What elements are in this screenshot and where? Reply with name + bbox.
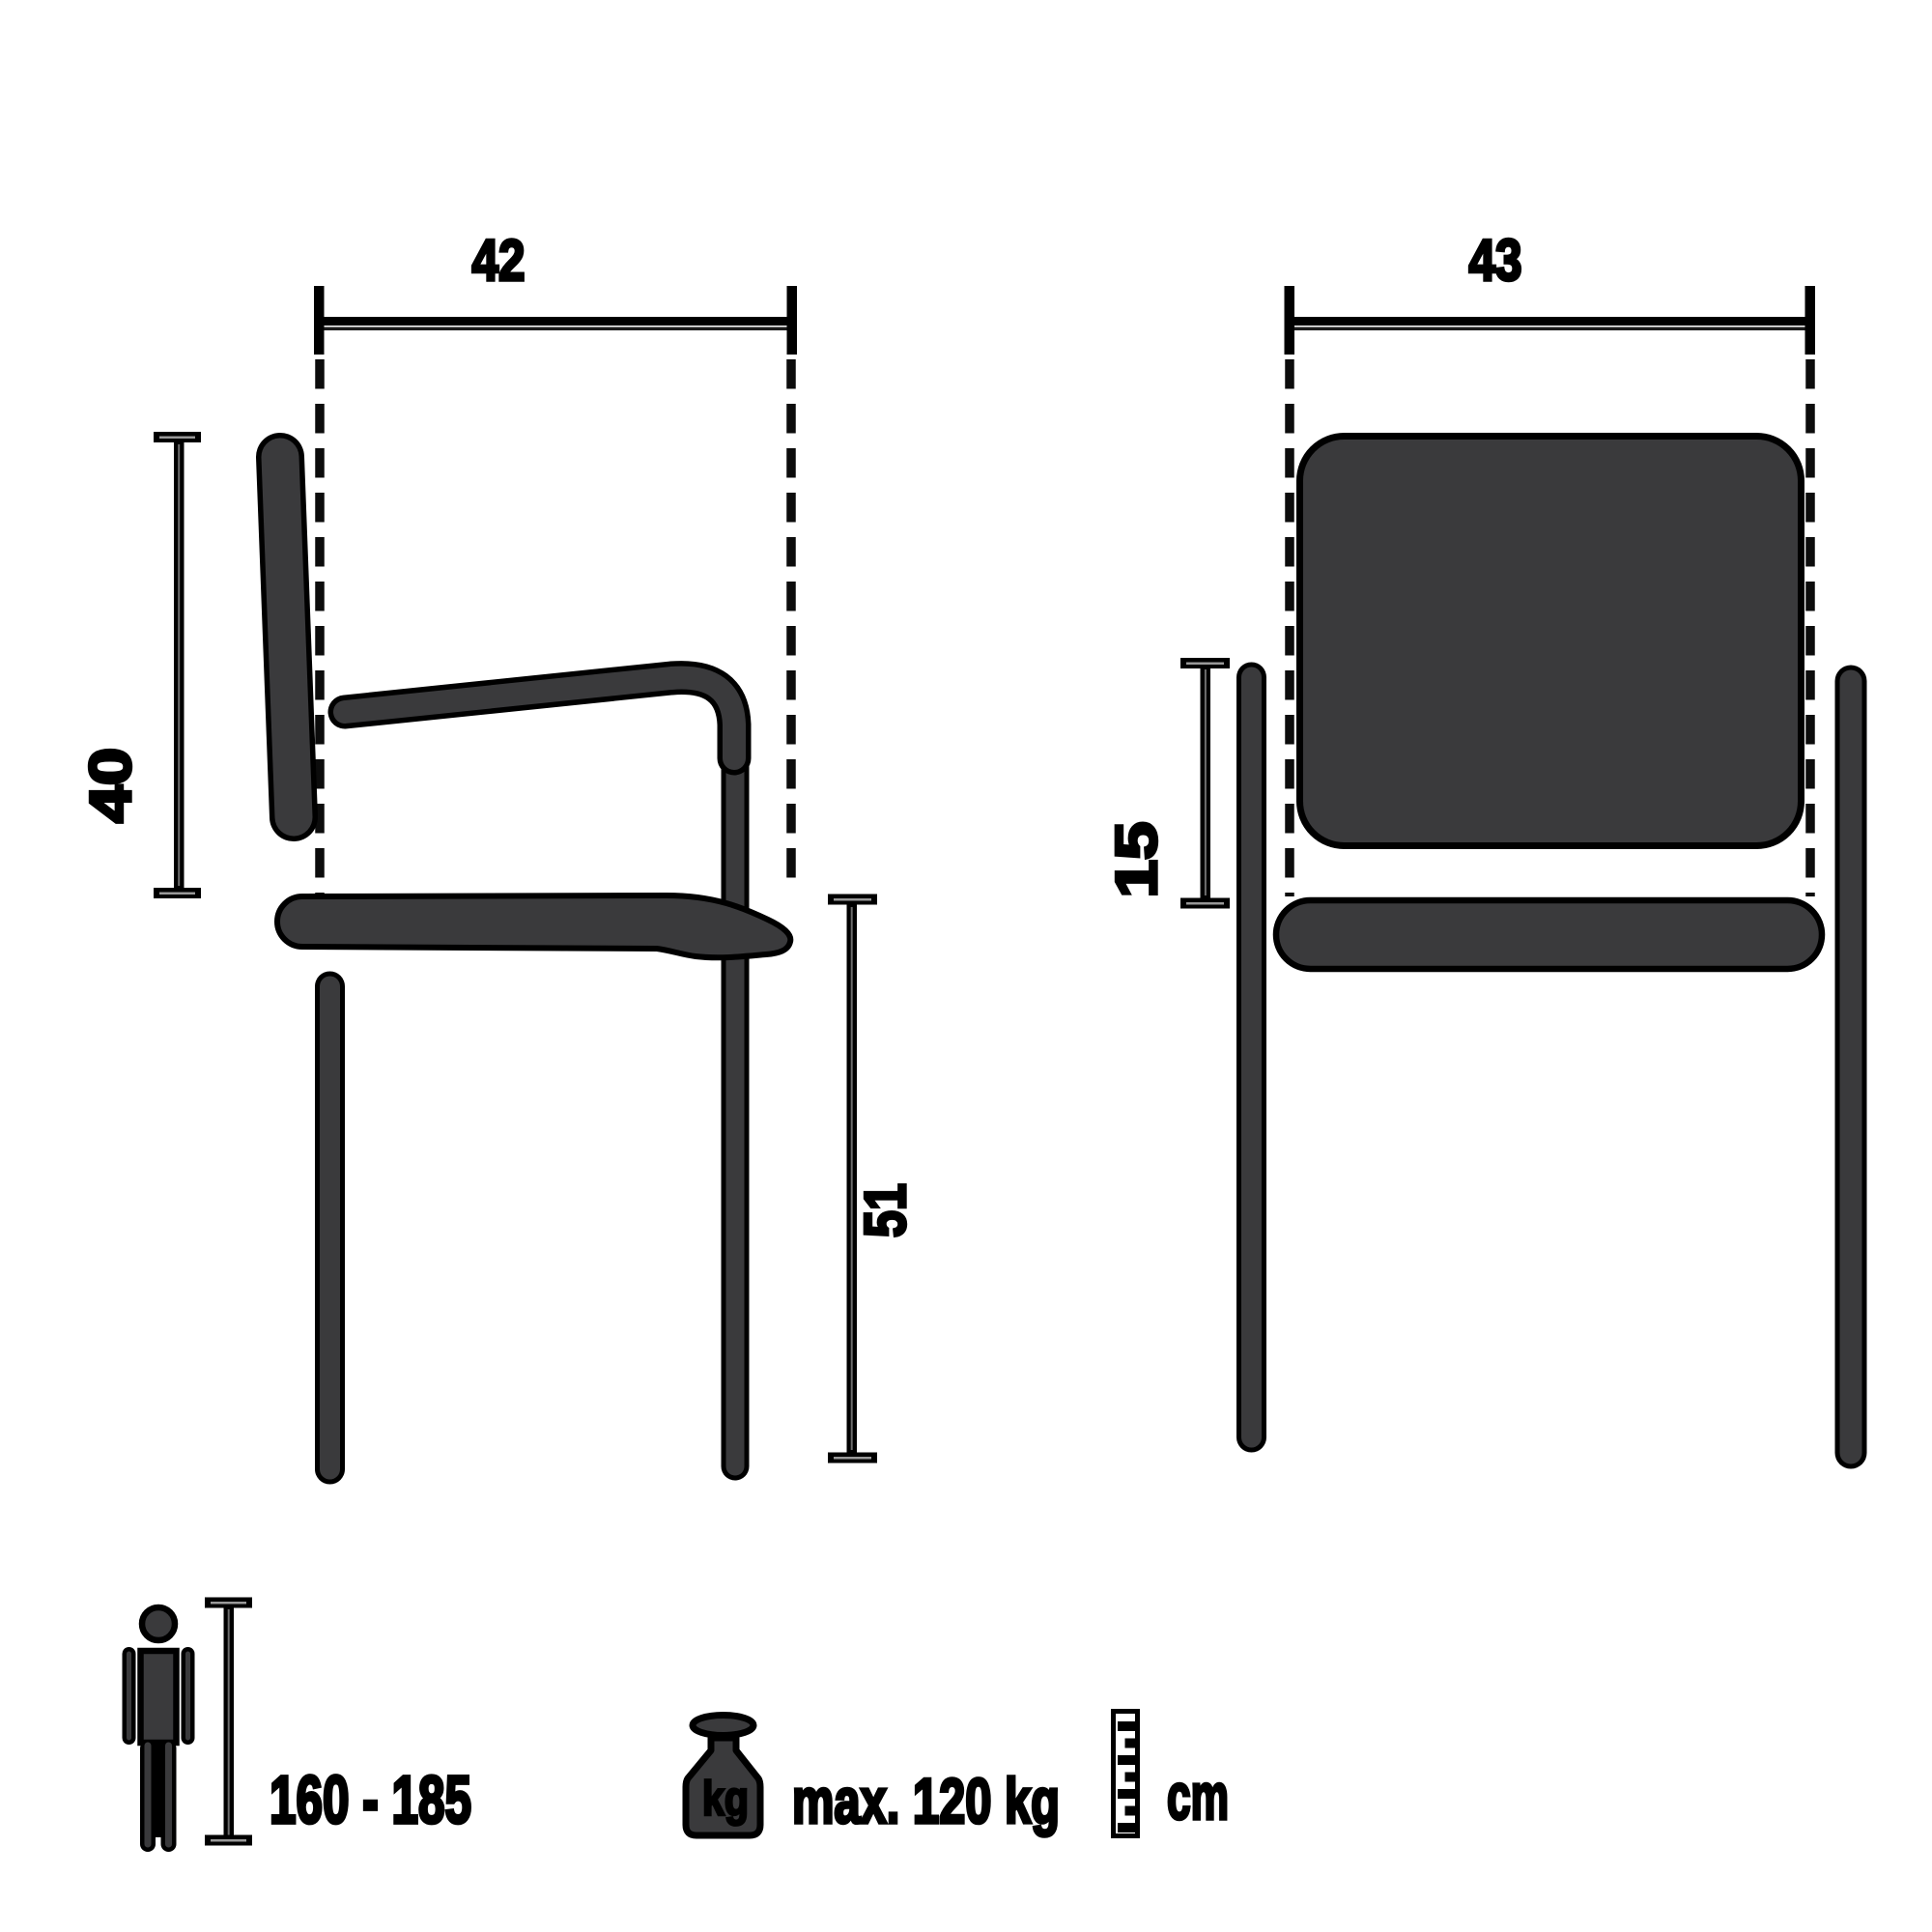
svg-text:15: 15 — [1104, 822, 1169, 898]
svg-text:40: 40 — [78, 748, 143, 823]
svg-text:160 - 185: 160 - 185 — [270, 1762, 471, 1837]
svg-text:42: 42 — [472, 228, 526, 293]
svg-text:cm: cm — [1167, 1760, 1229, 1833]
svg-text:51: 51 — [853, 1183, 918, 1237]
svg-text:max. 120 kg: max. 120 kg — [792, 1765, 1060, 1836]
svg-text:kg: kg — [702, 1772, 749, 1826]
svg-text:43: 43 — [1469, 228, 1522, 293]
